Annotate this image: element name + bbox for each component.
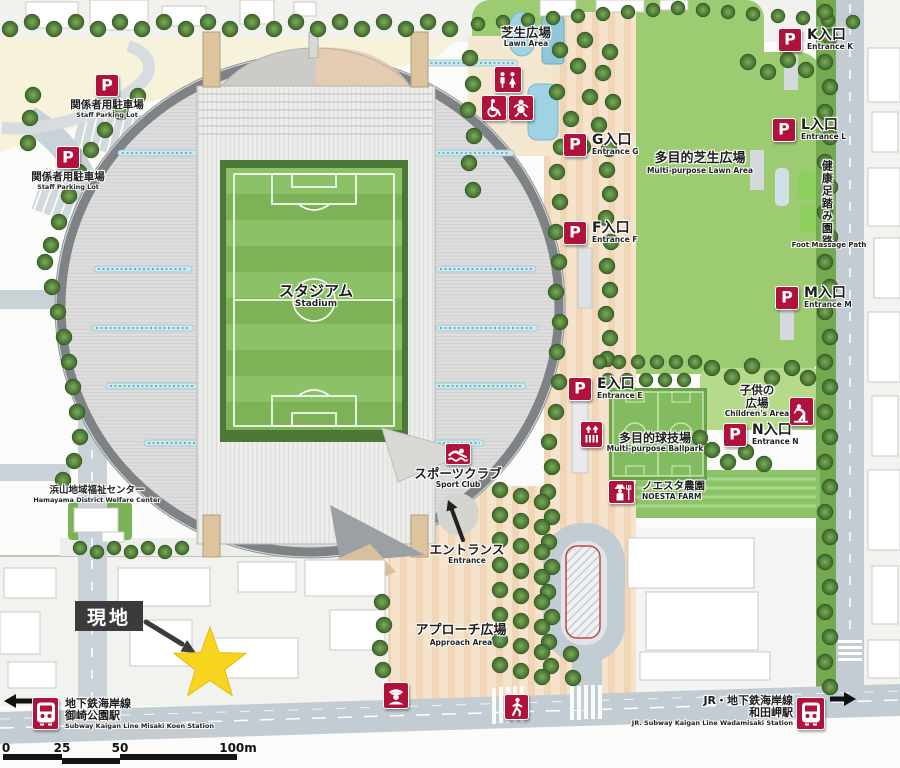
elevator-icon — [580, 421, 603, 448]
parking-icon: P — [723, 423, 747, 447]
tree-icon — [492, 657, 508, 673]
entrance-label-en: Entrance N — [752, 438, 799, 446]
tree-icon — [46, 21, 62, 37]
tree-icon — [784, 360, 800, 376]
tree-icon — [513, 488, 529, 504]
tree-icon — [599, 162, 615, 178]
tree-icon — [602, 330, 618, 346]
tree-icon — [546, 11, 560, 25]
tree-icon — [817, 654, 833, 670]
tree-icon — [565, 670, 581, 686]
tree-icon — [288, 14, 304, 30]
tree-icon — [593, 355, 607, 369]
tree-icon — [563, 111, 579, 127]
tree-icon — [696, 3, 710, 17]
tree-icon — [462, 50, 478, 66]
tree-icon — [631, 355, 645, 369]
tree-icon — [534, 619, 550, 635]
tree-icon — [465, 76, 481, 92]
scale-bar: 0 25 50 100m — [0, 741, 270, 767]
tree-icon — [492, 582, 508, 598]
tree-icon — [72, 429, 88, 445]
tree-icon — [534, 519, 550, 535]
tree-icon — [466, 128, 482, 144]
label-entrance: エントランス Entrance — [430, 543, 505, 565]
tree-icon — [591, 117, 607, 133]
tree-icon — [513, 588, 529, 604]
tree-icon — [107, 541, 121, 555]
label-approach-area: アプローチ広場 Approach Area — [415, 624, 506, 647]
tree-icon — [534, 669, 550, 685]
entrance-marker-E: PE入口Entrance E — [568, 377, 642, 401]
tree-icon — [571, 9, 585, 23]
tree-icon — [25, 87, 41, 103]
tree-icon — [549, 344, 565, 360]
tree-icon — [44, 279, 60, 295]
label-welfare-center: 浜山地域福祉センター Hamayama District Welfare Cen… — [33, 486, 160, 504]
tree-icon — [563, 646, 579, 662]
tree-icon — [2, 21, 18, 37]
tree-icon — [61, 354, 77, 370]
tree-icon — [97, 122, 113, 138]
tree-icon — [513, 513, 529, 529]
tree-icon — [398, 21, 414, 37]
staff-parking-marker-1: P 関係者用駐車場 Staff Parking Lot — [40, 74, 174, 119]
tree-icon — [817, 404, 833, 420]
parking-icon: P — [563, 221, 587, 245]
tree-icon — [548, 224, 564, 240]
tree-icon — [266, 21, 282, 37]
tree-icon — [310, 21, 326, 37]
tree-icon — [69, 404, 85, 420]
tree-icon — [244, 14, 260, 30]
tree-icon — [51, 214, 67, 230]
parking-icon: P — [568, 377, 592, 401]
tree-icon — [90, 545, 104, 559]
tree-icon — [492, 607, 508, 623]
tree-icon — [534, 594, 550, 610]
tree-icon — [817, 554, 833, 570]
tree-icon — [551, 374, 567, 390]
tree-icon — [800, 370, 816, 386]
farm-icon — [608, 480, 635, 504]
tree-icon — [817, 254, 833, 270]
tree-icon — [688, 355, 702, 369]
tree-icon — [724, 369, 740, 385]
tree-icon — [822, 529, 838, 545]
tree-icon — [534, 569, 550, 585]
tree-icon — [68, 14, 84, 30]
tree-icon — [744, 358, 760, 374]
entrance-label-en: Entrance M — [804, 301, 852, 309]
wadamisaki-station-icon — [796, 697, 825, 730]
tree-icon — [460, 102, 476, 118]
misaki-station-icon — [32, 697, 59, 730]
tree-icon — [669, 355, 683, 369]
tree-icon — [376, 14, 392, 30]
label-sport-club: スポーツクラブ Sport Club — [414, 467, 501, 489]
tree-icon — [37, 254, 53, 270]
tree-icon — [513, 563, 529, 579]
tree-icon — [420, 14, 436, 30]
parking-icon: P — [778, 28, 802, 52]
tree-icon — [817, 54, 833, 70]
tree-icon — [817, 504, 833, 520]
tree-icon — [817, 454, 833, 470]
tree-icon — [746, 7, 760, 21]
drinking-fountain-icon — [789, 397, 814, 426]
parking-icon: P — [95, 74, 119, 97]
police-box-icon — [383, 682, 409, 709]
tree-icon — [740, 54, 756, 70]
tree-icon — [548, 404, 564, 420]
tree-icon — [513, 613, 529, 629]
tree-icon — [846, 15, 860, 29]
label-childrens-area: 子供の 広場 Children's Area — [725, 384, 790, 418]
tree-icon — [534, 494, 550, 510]
tree-icon — [602, 282, 618, 298]
entrance-label-en: Entrance L — [801, 133, 846, 141]
label-multipurpose-lawn: 多目的芝生広場 Multi-purpose Lawn Area — [647, 152, 753, 175]
tree-icon — [822, 379, 838, 395]
tree-icon — [677, 373, 691, 387]
label-foot-massage-path-en: Foot Massage Path — [792, 242, 867, 250]
tree-icon — [796, 11, 810, 25]
scale-tick-25: 25 — [54, 741, 71, 755]
tree-icon — [721, 5, 735, 19]
tree-icon — [200, 14, 216, 30]
label-stadium: スタジアム Stadium — [279, 283, 353, 310]
scale-tick-100m: 100m — [219, 741, 257, 755]
tree-icon — [465, 182, 481, 198]
tree-icon — [141, 541, 155, 555]
tree-icon — [822, 579, 838, 595]
tree-icon — [354, 21, 370, 37]
tree-icon — [66, 453, 82, 469]
tree-icon — [621, 5, 635, 19]
tree-icon — [646, 3, 660, 17]
pedestrian-crossing-icon — [504, 694, 529, 720]
tree-icon — [50, 304, 66, 320]
tree-icon — [822, 679, 838, 695]
tree-icon — [570, 58, 586, 74]
parking-icon: P — [56, 146, 80, 169]
tree-icon — [461, 155, 477, 171]
tree-icon — [720, 454, 736, 470]
stadium-park-map: 芝生広場 Lawn Area 多目的芝生広場 Multi-purpose Law… — [0, 0, 900, 768]
tree-icon — [471, 17, 485, 31]
tree-icon — [582, 89, 598, 105]
parking-icon: P — [563, 133, 587, 157]
entrance-label-en: Entrance G — [592, 148, 638, 156]
baby-room-icon — [508, 95, 534, 121]
tree-icon — [650, 355, 664, 369]
tree-icon — [552, 194, 568, 210]
tree-icon — [178, 21, 194, 37]
entrance-marker-F: PF入口Entrance F — [563, 221, 637, 245]
tree-icon — [548, 284, 564, 300]
tree-icon — [332, 14, 348, 30]
tree-icon — [577, 32, 593, 48]
tree-icon — [24, 14, 40, 30]
tree-icon — [552, 314, 568, 330]
tree-icon — [376, 617, 392, 633]
road-east — [836, 0, 864, 690]
entrance-label-en: Entrance E — [597, 392, 642, 400]
wadamisaki-station-label: JR・地下鉄海岸線 和田岬駅 JR. Subway Kaigan Line Wa… — [630, 695, 793, 727]
tree-icon — [156, 14, 172, 30]
tree-icon — [43, 237, 59, 253]
tree-icon — [442, 21, 458, 37]
tree-icon — [756, 456, 772, 472]
label-lawn-area: 芝生広場 Lawn Area — [501, 26, 551, 48]
tree-icon — [513, 663, 529, 679]
tree-icon — [534, 644, 550, 660]
label-foot-massage-path-jp: 健康足踏み園路 — [820, 160, 832, 248]
scale-tick-0: 0 — [2, 741, 10, 755]
entrance-marker-L: PL入口Entrance L — [772, 118, 846, 142]
tree-icon — [552, 42, 568, 58]
tree-icon — [822, 329, 838, 345]
tree-icon — [124, 545, 138, 559]
tree-icon — [822, 79, 838, 95]
tree-icon — [549, 84, 565, 100]
tree-icon — [602, 186, 618, 202]
tree-icon — [704, 360, 720, 376]
parking-icon: P — [775, 286, 799, 310]
entrance-marker-N: PN入口Entrance N — [723, 423, 799, 447]
staff-parking-marker-2: P 関係者用駐車場 Staff Parking Lot — [1, 146, 135, 191]
tree-icon — [780, 52, 796, 68]
tree-icon — [222, 21, 238, 37]
restroom-icon — [494, 66, 522, 93]
tree-icon — [817, 4, 833, 20]
tree-icon — [513, 638, 529, 654]
entrance-label-en: Entrance K — [807, 43, 853, 51]
tree-icon — [90, 21, 106, 37]
label-multipurpose-ballpark: 多目的球技場 Multi-purpose Ballpark — [607, 432, 704, 454]
tree-icon — [605, 94, 621, 110]
tree-icon — [602, 44, 618, 60]
entrance-marker-K: PK入口Entrance K — [778, 28, 853, 52]
site-marker-label: 現地 — [75, 601, 143, 631]
tree-icon — [544, 459, 560, 475]
tree-icon — [822, 479, 838, 495]
tree-icon — [375, 662, 391, 678]
entrance-marker-G: PG入口Entrance G — [563, 133, 638, 157]
entrance-marker-M: PM入口Entrance M — [775, 286, 852, 310]
tree-icon — [513, 538, 529, 554]
tree-icon — [817, 354, 833, 370]
tree-icon — [771, 9, 785, 23]
tree-icon — [612, 355, 626, 369]
tree-icon — [817, 604, 833, 620]
wheelchair-icon — [481, 95, 507, 121]
tree-icon — [549, 164, 565, 180]
parking-icon: P — [772, 118, 796, 142]
tree-icon — [492, 507, 508, 523]
tree-icon — [22, 110, 38, 126]
tree-icon — [372, 640, 388, 656]
scale-tick-50: 50 — [112, 741, 129, 755]
tree-icon — [798, 62, 814, 78]
tree-icon — [158, 545, 172, 559]
tree-icon — [658, 373, 672, 387]
misaki-station-label: 地下鉄海岸線 御崎公園駅 Subway Kaigan Line Misaki K… — [65, 698, 214, 730]
tree-icon — [598, 306, 614, 322]
tree-icon — [134, 21, 150, 37]
tree-icon — [551, 254, 567, 270]
tree-icon — [73, 541, 87, 555]
entrance-label-en: Entrance F — [592, 236, 637, 244]
tree-icon — [599, 258, 615, 274]
tree-icon — [175, 541, 189, 555]
tree-icon — [595, 65, 611, 81]
swimming-icon — [445, 443, 471, 465]
tree-icon — [56, 329, 72, 345]
label-noesta-farm: ノエスタ農園 NOESTA FARM — [642, 481, 705, 501]
tree-icon — [541, 434, 557, 450]
tree-icon — [596, 7, 610, 21]
tree-icon — [374, 594, 390, 610]
tree-icon — [65, 379, 81, 395]
tree-icon — [534, 544, 550, 560]
tree-icon — [822, 629, 838, 645]
tree-icon — [760, 64, 776, 80]
tree-icon — [112, 14, 128, 30]
tree-icon — [671, 1, 685, 15]
tree-icon — [704, 442, 720, 458]
tree-icon — [822, 429, 838, 445]
